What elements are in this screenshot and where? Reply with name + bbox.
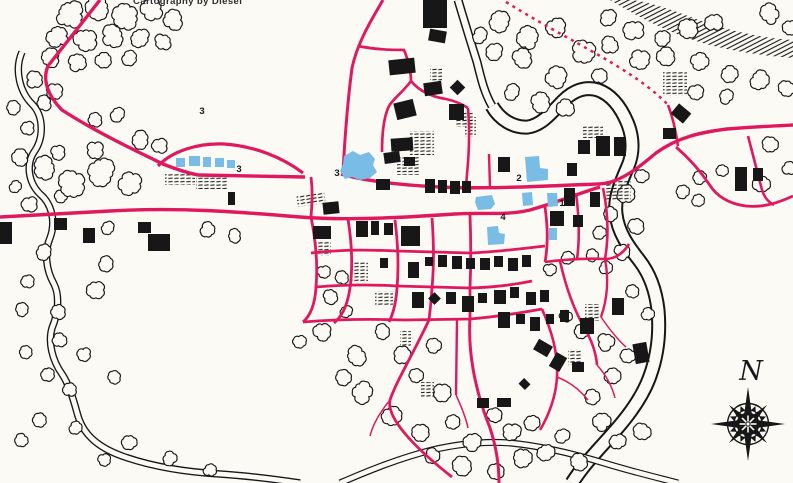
garden-plot <box>165 174 195 185</box>
tree-icon <box>62 383 76 397</box>
tree-icon <box>34 155 54 180</box>
tree-icon <box>531 92 550 113</box>
map-credit: Cartography by Diesel <box>133 0 242 7</box>
dock <box>189 156 200 166</box>
building <box>550 211 564 226</box>
building <box>0 222 12 244</box>
building <box>384 223 393 235</box>
building <box>388 58 415 76</box>
tree-icon <box>51 145 65 160</box>
map-canvas: 333241N Cartography by Diesel <box>0 0 793 483</box>
district-label: 3 <box>334 168 339 179</box>
garden-plot <box>465 117 476 137</box>
tree-icon <box>623 22 644 40</box>
tree-icon <box>561 251 574 264</box>
building <box>498 312 510 328</box>
tree-icon <box>609 434 626 449</box>
building <box>526 292 536 305</box>
tree-icon <box>16 303 29 317</box>
building <box>380 258 388 268</box>
building <box>578 140 590 154</box>
building <box>612 298 624 315</box>
building <box>438 180 447 193</box>
building <box>596 136 610 156</box>
tree-icon <box>591 69 607 84</box>
building <box>478 293 487 303</box>
tree-icon <box>626 285 639 298</box>
building <box>590 192 600 207</box>
garden-plot <box>410 131 434 155</box>
building <box>148 234 170 251</box>
building <box>614 137 626 156</box>
building <box>228 192 235 205</box>
dock <box>203 157 211 167</box>
garden-plot <box>375 291 393 306</box>
tree-icon <box>87 142 103 159</box>
building <box>138 222 151 233</box>
building <box>313 226 331 239</box>
tree-icon <box>51 304 66 319</box>
building <box>438 255 447 267</box>
tree-icon <box>69 421 82 434</box>
building <box>452 256 462 269</box>
building <box>423 0 447 28</box>
tree-icon <box>678 19 698 39</box>
tree-icon <box>99 256 113 272</box>
tree-icon <box>293 335 307 348</box>
building <box>540 290 549 302</box>
building <box>564 188 575 206</box>
tree-icon <box>716 165 729 176</box>
building <box>480 258 490 270</box>
building <box>408 262 419 278</box>
tree-icon <box>21 197 37 212</box>
tree-icon <box>27 71 43 88</box>
tree-icon <box>21 275 34 288</box>
tree-icon <box>32 413 46 427</box>
village-map: 333241N <box>0 0 793 483</box>
building <box>446 292 456 304</box>
building <box>580 318 594 334</box>
building <box>573 215 583 227</box>
building <box>522 255 531 267</box>
tree-icon <box>86 282 104 299</box>
road <box>311 177 312 217</box>
building <box>546 314 554 324</box>
building <box>391 137 414 152</box>
building <box>497 398 511 407</box>
tree-icon <box>488 464 505 480</box>
tree-icon <box>628 219 644 235</box>
pond <box>522 192 533 206</box>
building <box>560 310 569 322</box>
district-label: 3 <box>236 164 241 175</box>
tree-icon <box>58 170 84 197</box>
building <box>462 296 474 312</box>
tree-icon <box>688 85 704 100</box>
building <box>450 181 460 194</box>
tree-icon <box>692 194 705 206</box>
tree-icon <box>630 50 650 69</box>
district-label: 4 <box>500 212 506 223</box>
building <box>494 256 503 267</box>
building <box>376 179 390 190</box>
compass-north-label: N <box>738 356 764 387</box>
district-label: 1 <box>559 198 565 209</box>
tree-icon <box>98 454 111 467</box>
tree-icon <box>412 424 429 441</box>
tree-icon <box>409 369 424 383</box>
building <box>322 201 339 215</box>
building <box>404 157 415 166</box>
dock <box>227 160 235 168</box>
building <box>54 218 67 230</box>
garden-plot <box>196 176 228 189</box>
tree-icon <box>108 371 121 385</box>
pond <box>547 193 558 207</box>
building <box>477 398 489 408</box>
building <box>425 257 433 266</box>
building <box>466 258 475 269</box>
building <box>423 81 443 96</box>
building <box>425 179 435 193</box>
district-label: 3 <box>199 106 204 117</box>
building <box>412 292 424 308</box>
tree-icon <box>77 348 91 362</box>
building <box>371 221 379 235</box>
building <box>663 128 676 139</box>
building <box>508 258 518 271</box>
tree-icon <box>21 121 34 135</box>
tree-icon <box>68 54 86 72</box>
road <box>489 154 490 188</box>
tree-icon <box>323 290 337 305</box>
tree-icon <box>445 415 459 430</box>
tree-icon <box>229 228 241 243</box>
building <box>498 157 510 172</box>
building <box>494 290 506 304</box>
tree-icon <box>620 349 636 363</box>
garden-plot <box>430 67 442 82</box>
garden-plot <box>663 72 687 96</box>
dock <box>176 158 185 167</box>
building <box>449 104 464 120</box>
tree-icon <box>434 384 451 402</box>
tree-icon <box>41 368 55 381</box>
pond <box>475 195 495 210</box>
building <box>356 221 368 237</box>
building <box>572 362 584 372</box>
tree-icon <box>641 307 654 320</box>
pond <box>340 151 377 180</box>
tree-icon <box>19 346 32 359</box>
garden-plot <box>400 331 411 347</box>
tree-icon <box>151 138 167 153</box>
tree-icon <box>335 271 348 284</box>
building <box>567 163 577 176</box>
building <box>383 151 400 164</box>
building <box>462 181 471 193</box>
tree-icon <box>704 14 722 30</box>
building <box>530 317 540 331</box>
dock <box>215 158 224 167</box>
building <box>516 314 525 324</box>
compass-star-center <box>746 422 749 425</box>
building <box>753 168 763 181</box>
road <box>456 320 457 395</box>
building <box>401 226 420 246</box>
garden-plot <box>352 261 368 283</box>
building <box>510 287 519 298</box>
building <box>83 228 95 243</box>
pond <box>549 228 557 240</box>
building <box>735 167 747 191</box>
district-label: 2 <box>516 173 521 184</box>
tree-icon <box>317 266 330 278</box>
garden-plot <box>421 382 434 397</box>
